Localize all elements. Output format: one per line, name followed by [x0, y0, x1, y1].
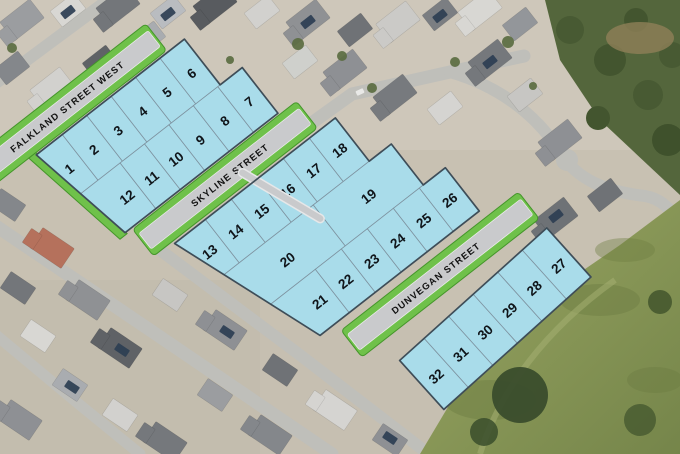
- subdivision-aerial-map: FALKLAND STREET WEST 1 2 3 4 5 6 12 11 1…: [0, 0, 680, 454]
- dirt-clearing: [606, 22, 674, 54]
- map-canvas: FALKLAND STREET WEST 1 2 3 4 5 6 12 11 1…: [0, 0, 680, 454]
- large-tree: [492, 367, 548, 423]
